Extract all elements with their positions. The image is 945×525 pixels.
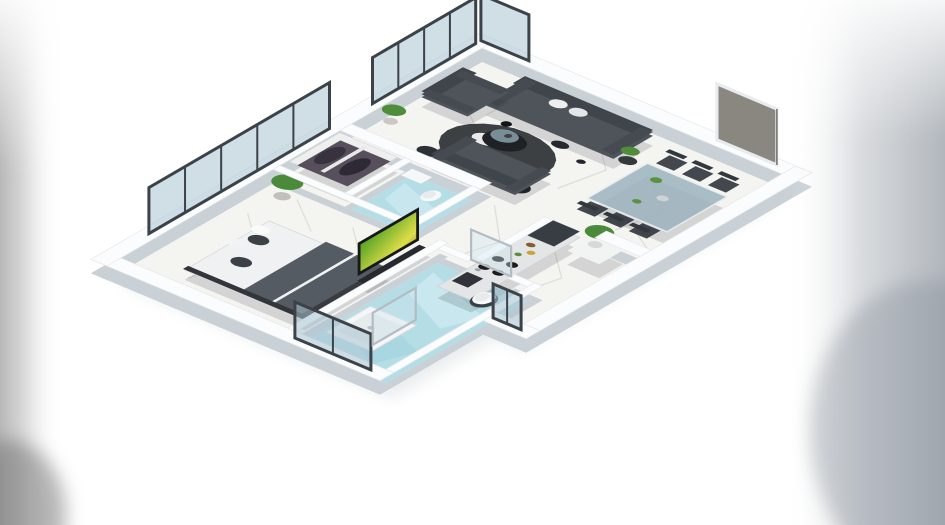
- floor-plan-svg: [0, 0, 945, 525]
- left-bar-top-fade: [0, 0, 60, 170]
- screenshot-root: 3D isometric floor plan render of a one-…: [0, 0, 945, 525]
- right-bar-top-fade: [786, 0, 945, 140]
